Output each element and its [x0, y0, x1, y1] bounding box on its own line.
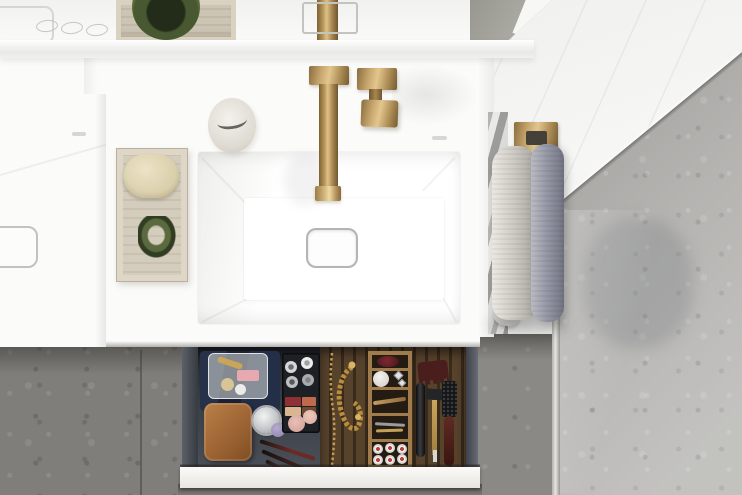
small-jar [373, 455, 383, 465]
travertine-box [116, 0, 236, 42]
silver-jewellery [398, 379, 406, 387]
faucet-spout [319, 84, 338, 190]
green-scrunchie [138, 216, 176, 258]
leather-pouch [204, 403, 252, 461]
wire-frame [302, 2, 358, 34]
razor-handle [432, 400, 437, 455]
ceramic-cup [208, 98, 256, 153]
small-jar [385, 443, 395, 453]
mirror-cabinet-top [0, 0, 472, 42]
pink-palette [237, 370, 259, 381]
cream-jar [285, 361, 297, 373]
bath-ball [373, 371, 389, 387]
small-jar [373, 444, 383, 454]
tweezers [375, 422, 405, 427]
organizer-divider [372, 387, 408, 390]
wooden-organizer [368, 351, 412, 469]
cabinet-button-icon [35, 19, 58, 33]
bathroom-floor-right [472, 334, 556, 495]
bathroom-overhead-photo [0, 0, 742, 495]
styling-tool [416, 383, 425, 457]
cabinet-button-icon [85, 23, 108, 37]
glass-reflection [558, 210, 740, 493]
drawer-side-wall [182, 347, 198, 471]
organizer-divider [372, 439, 408, 442]
powder-jar [221, 378, 234, 391]
gold-chain-and-bracelet [322, 351, 366, 467]
bathroom-floor-left [0, 340, 186, 495]
cream-jar [301, 357, 313, 369]
cream-jar [286, 376, 298, 388]
drawer-front-panel [180, 467, 480, 488]
gold-makeup-tube [217, 356, 244, 370]
towel-blue-grey [531, 144, 564, 322]
drawer-side-wall [464, 347, 478, 471]
cream-jar [302, 374, 314, 386]
brand-mark [72, 132, 86, 136]
brand-mark [432, 136, 447, 140]
faucet-spout-escutcheon [309, 66, 349, 85]
razor-tip [433, 450, 437, 462]
open-drawer [182, 347, 478, 471]
main-basin-drain [306, 228, 358, 268]
left-basin [0, 94, 106, 347]
bracket-slot [526, 131, 547, 145]
small-jar [397, 444, 407, 454]
shelf-front-edge [0, 40, 534, 58]
soap-bar [123, 154, 179, 198]
travertine-tray [116, 148, 188, 282]
hair-claw-clip [417, 359, 449, 381]
wooden-stick [373, 397, 406, 406]
cosmetic-bag [208, 353, 268, 399]
cabinet-button-icon [60, 21, 83, 35]
faucet-handle-escutcheon [357, 68, 397, 90]
left-basin-drain [0, 226, 38, 268]
hair-pin [376, 429, 403, 432]
small-jar [397, 454, 407, 464]
faucet-handle [361, 99, 399, 127]
floor-tile-joint [140, 350, 142, 495]
hairbrush-handle [444, 416, 454, 466]
maroon-item [377, 356, 399, 367]
organizer-divider [372, 413, 408, 416]
blush-compact [303, 410, 317, 424]
green-bowl [132, 0, 200, 40]
makeup-brush [259, 439, 315, 461]
cream-jar [235, 384, 246, 395]
cup-seam [216, 112, 248, 132]
faucet-spout-tip [315, 186, 341, 201]
eyeshadow-pan [285, 397, 301, 406]
small-jar [385, 455, 395, 465]
cosmetics-tray [282, 353, 320, 433]
hairbrush-bristles [442, 381, 457, 417]
eyeshadow-pan [302, 397, 316, 406]
